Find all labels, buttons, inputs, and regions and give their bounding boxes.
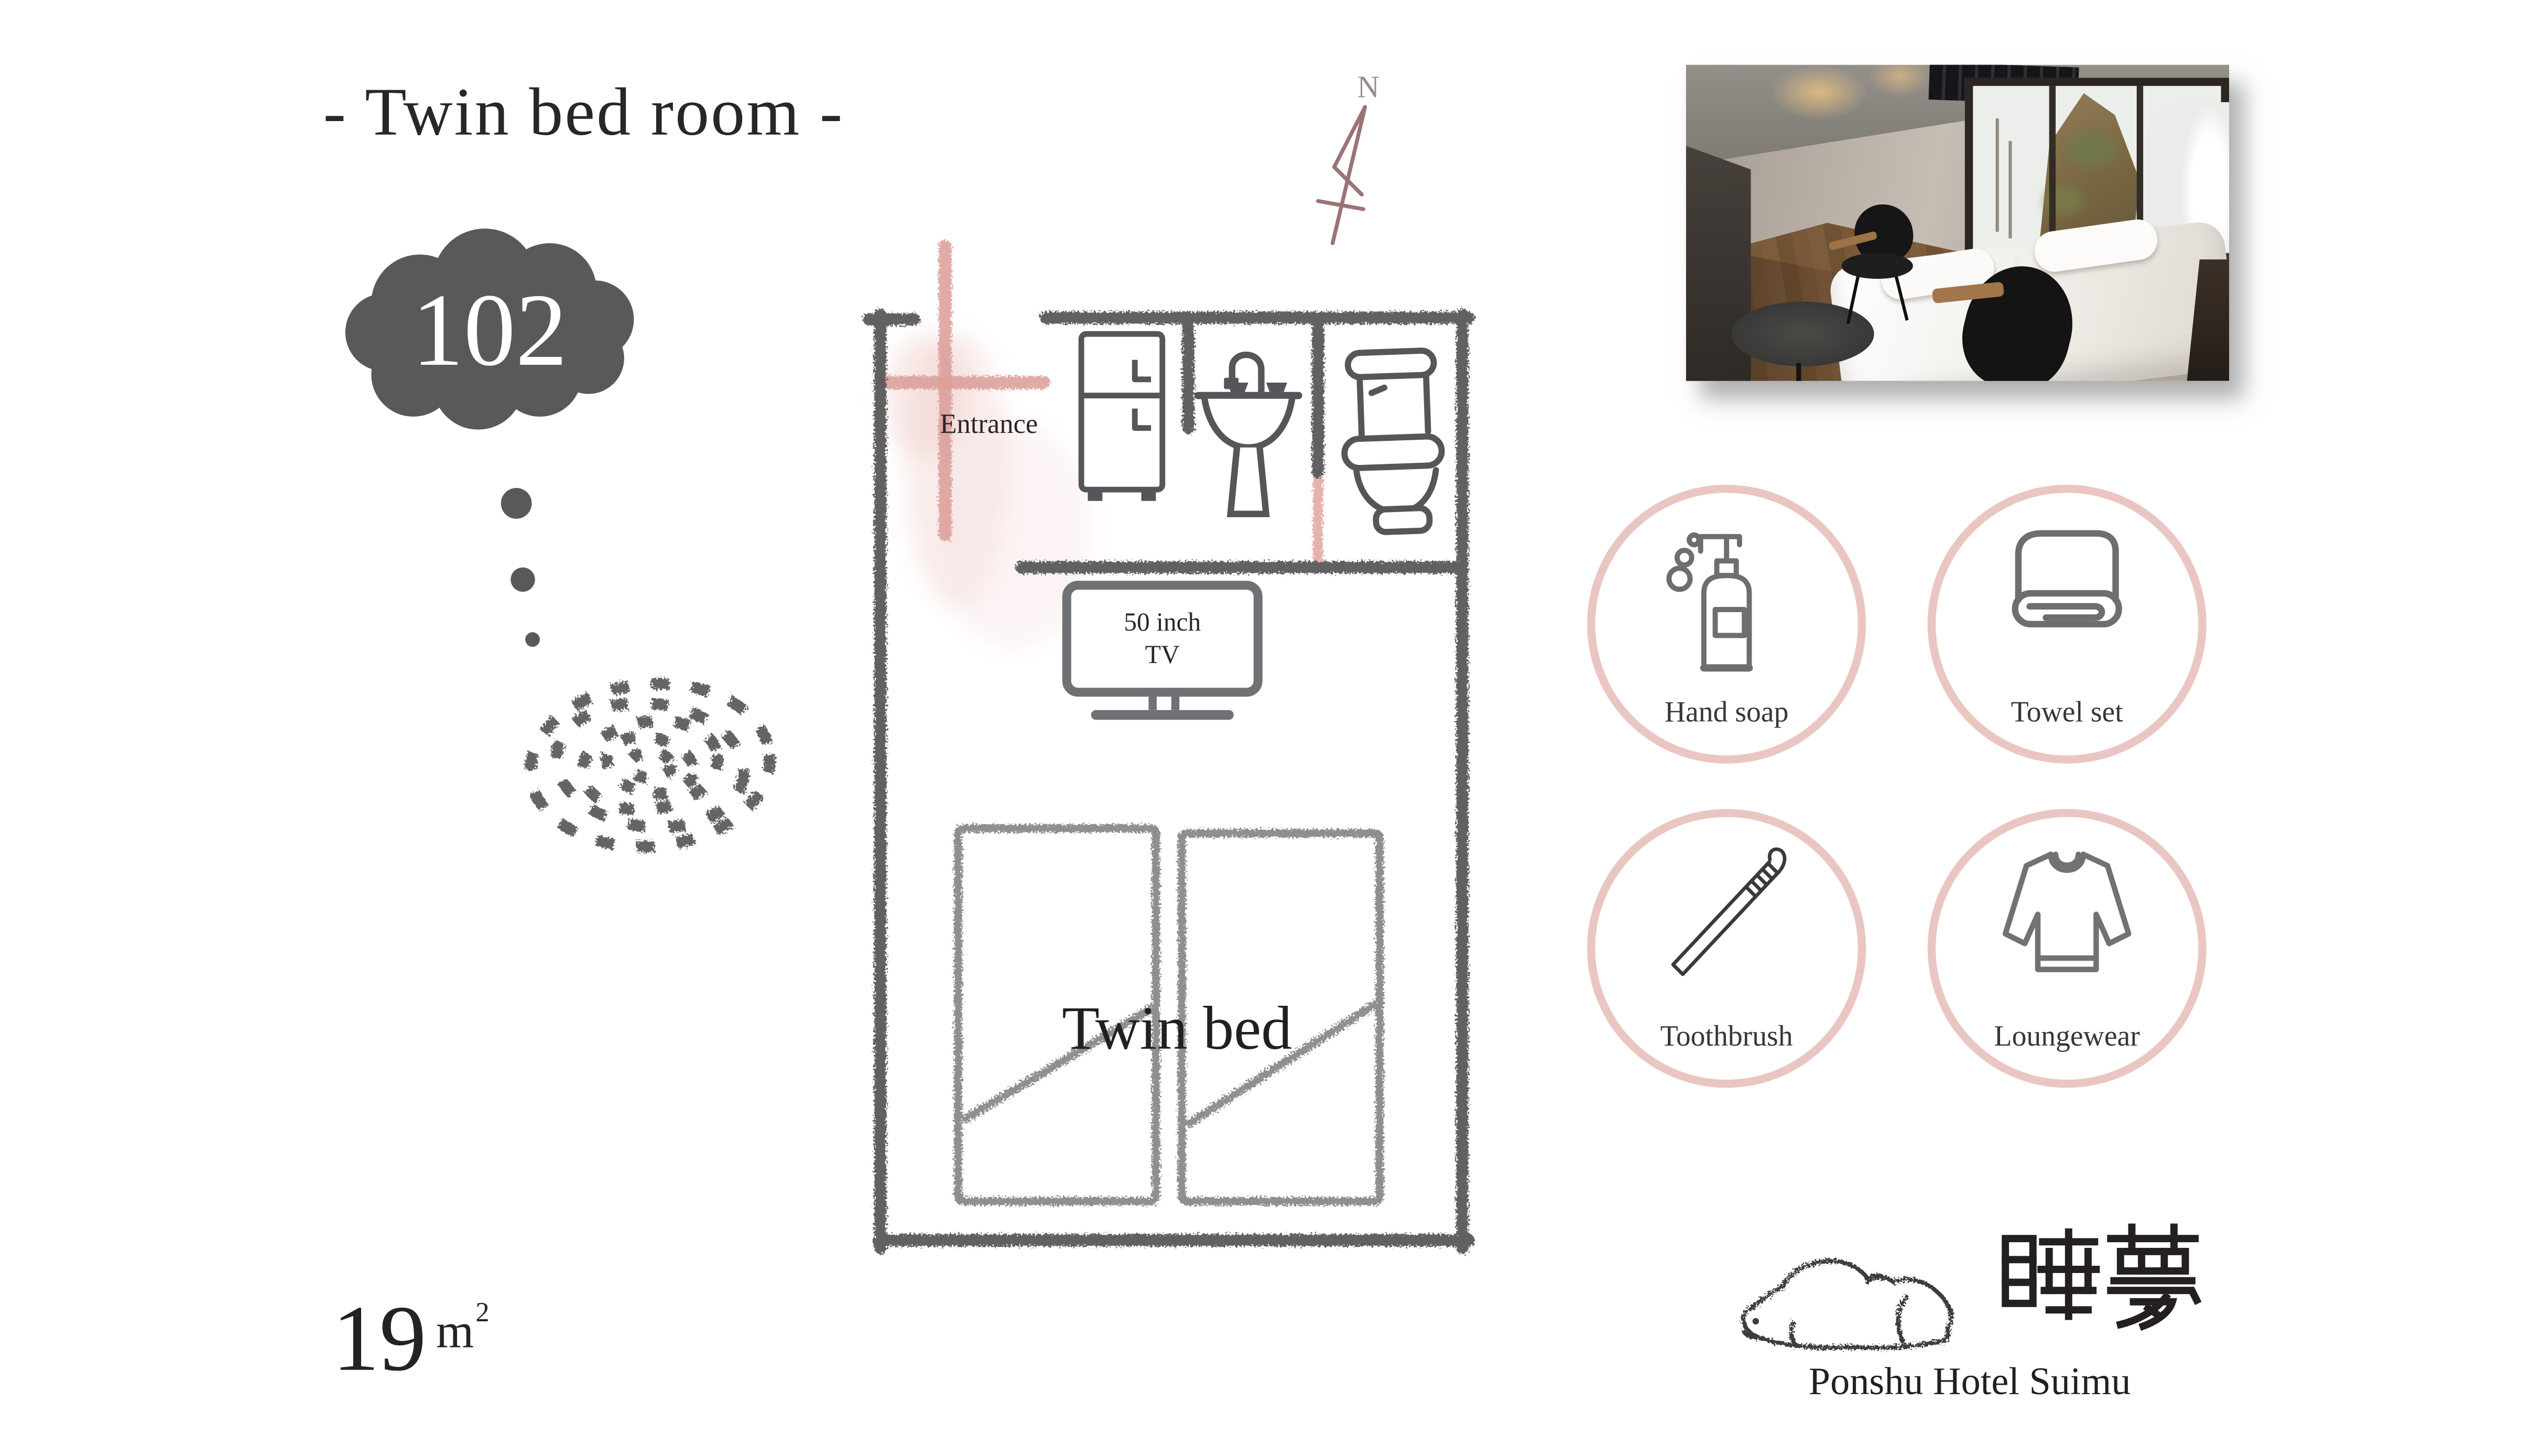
- amenity-label: Toothbrush: [1595, 1020, 1858, 1054]
- amenity-label: Loungewear: [1936, 1020, 2198, 1054]
- compass-needle: [1318, 107, 1365, 243]
- amenity-loungewear: Loungewear: [1928, 809, 2207, 1088]
- kanji-mu: [2111, 1227, 2197, 1326]
- hotel-name: Ponshu Hotel Suimu: [1735, 1362, 2205, 1406]
- polar-bear-sketch: [1738, 1248, 1997, 1355]
- amenity-label: Hand soap: [1595, 696, 1858, 730]
- thought-dot: [510, 568, 535, 592]
- tv-label-line2: TV: [1145, 640, 1180, 669]
- room-info-poster: - Twin bed room - 102 19m2 N: [0, 0, 2542, 1456]
- toilet-icon: [1341, 350, 1444, 534]
- thought-dot: [501, 488, 532, 519]
- area-exponent: 2: [475, 1297, 489, 1328]
- tv-label-line1: 50 inch: [1124, 607, 1201, 636]
- floor-plan: 50 inch TV Entrance Twin bed: [859, 227, 1491, 1281]
- room-photo: [1686, 65, 2229, 381]
- room-area: 19m2: [332, 1284, 490, 1393]
- thought-dot: [525, 632, 540, 647]
- loungewear-icon: [1997, 843, 2137, 982]
- kanji-sui: [2005, 1232, 2096, 1317]
- towel-icon: [2002, 525, 2132, 632]
- area-unit: m: [436, 1305, 474, 1359]
- hedgehog-sketch: [519, 673, 781, 854]
- room-number: 102: [412, 273, 568, 387]
- amenity-label: Towel set: [1936, 696, 2198, 730]
- photo-spotlight: [1770, 65, 1868, 120]
- hotel-kanji: [2001, 1213, 2205, 1333]
- twin-bed-label: Twin bed: [1062, 994, 1292, 1062]
- compass-label: N: [1357, 70, 1379, 104]
- amenity-towel-set: Towel set: [1928, 485, 2207, 764]
- sink-icon: [1198, 355, 1299, 514]
- photo-table: [1731, 301, 1874, 366]
- entrance-label: Entrance: [940, 409, 1038, 439]
- toothbrush-icon: [1661, 843, 1791, 985]
- page-title: - Twin bed room -: [308, 74, 860, 152]
- room-number-cloud: 102: [335, 225, 644, 436]
- tv-icon: 50 inch TV: [1067, 585, 1258, 720]
- amenity-toothbrush: Toothbrush: [1587, 809, 1866, 1088]
- refrigerator-icon: [1081, 334, 1163, 501]
- area-value: 19: [332, 1286, 426, 1391]
- amenity-hand-soap: Hand soap: [1587, 485, 1866, 764]
- soap-bottle-icon: [1665, 519, 1788, 675]
